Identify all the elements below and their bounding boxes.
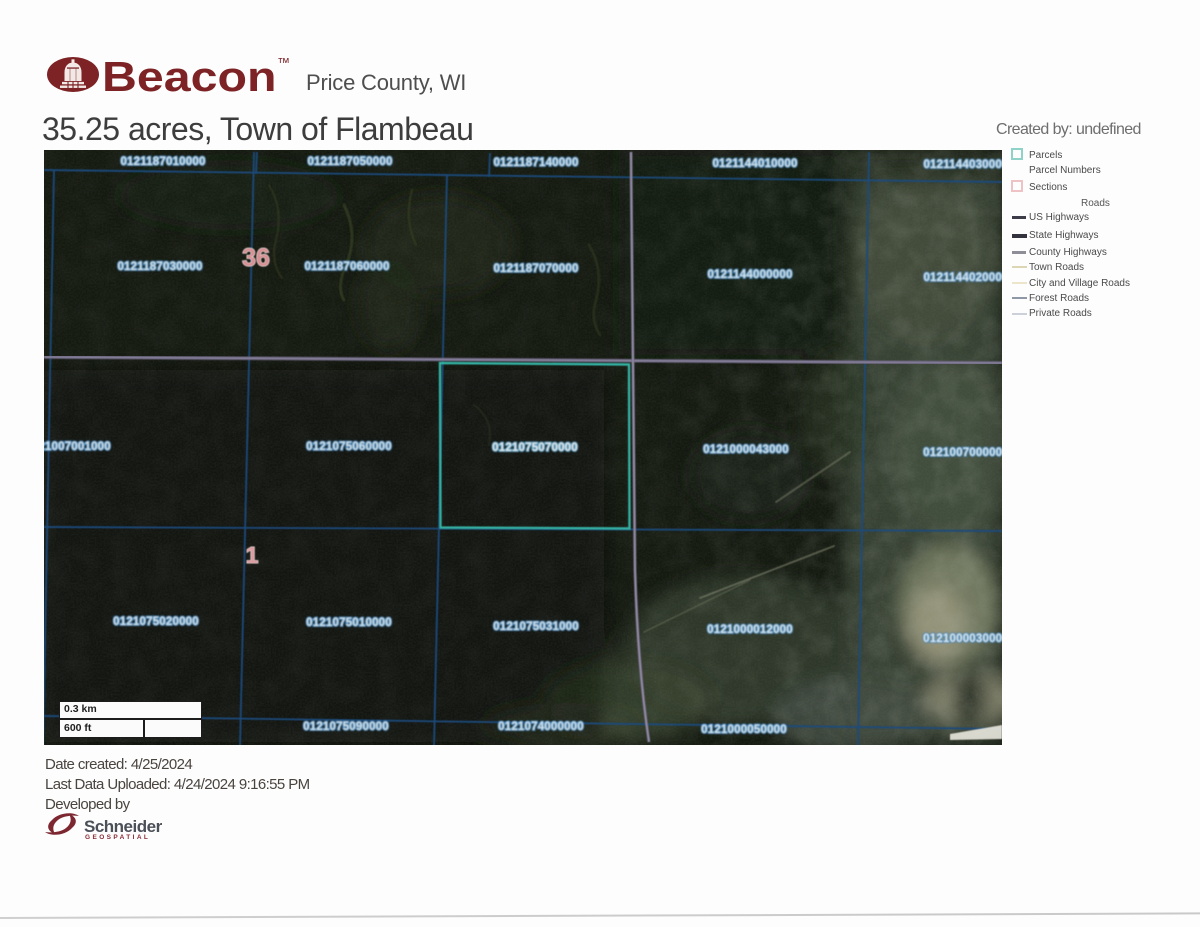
svg-text:1: 1: [246, 542, 259, 568]
svg-text:0121000012000: 0121000012000: [707, 624, 793, 636]
svg-text:0121144020000: 0121144020000: [923, 272, 1002, 284]
svg-text:0121075010000: 0121075010000: [306, 617, 392, 629]
svg-text:0121144030000: 0121144030000: [923, 159, 1002, 171]
svg-text:0121075070000: 0121075070000: [492, 442, 578, 454]
svg-text:0121187060000: 0121187060000: [304, 261, 389, 273]
svg-text:0121007000000: 0121007000000: [923, 447, 1002, 459]
svg-text:0121075060000: 0121075060000: [306, 441, 392, 453]
svg-text:0121187070000: 0121187070000: [493, 263, 578, 275]
svg-text:0121000050000: 0121000050000: [701, 724, 787, 736]
svg-text:0121187050000: 0121187050000: [307, 156, 392, 168]
svg-text:0121187140000: 0121187140000: [493, 157, 578, 169]
svg-text:0121007001000: 0121007001000: [44, 441, 111, 453]
svg-text:GEOSPATIAL: GEOSPATIAL: [85, 834, 150, 841]
svg-text:0121075031000: 0121075031000: [493, 621, 579, 633]
svg-text:0121000030000: 0121000030000: [923, 633, 1002, 645]
svg-text:0121075090000: 0121075090000: [303, 721, 389, 733]
svg-text:0121187010000: 0121187010000: [120, 156, 205, 168]
svg-text:0121074000000: 0121074000000: [498, 721, 584, 733]
svg-text:0121144010000: 0121144010000: [712, 158, 797, 170]
svg-text:36: 36: [242, 244, 270, 272]
svg-text:0121144000000: 0121144000000: [707, 269, 792, 281]
svg-text:0121000043000: 0121000043000: [703, 444, 789, 456]
svg-text:0121075020000: 0121075020000: [113, 616, 199, 628]
svg-text:0121187030000: 0121187030000: [117, 261, 202, 273]
